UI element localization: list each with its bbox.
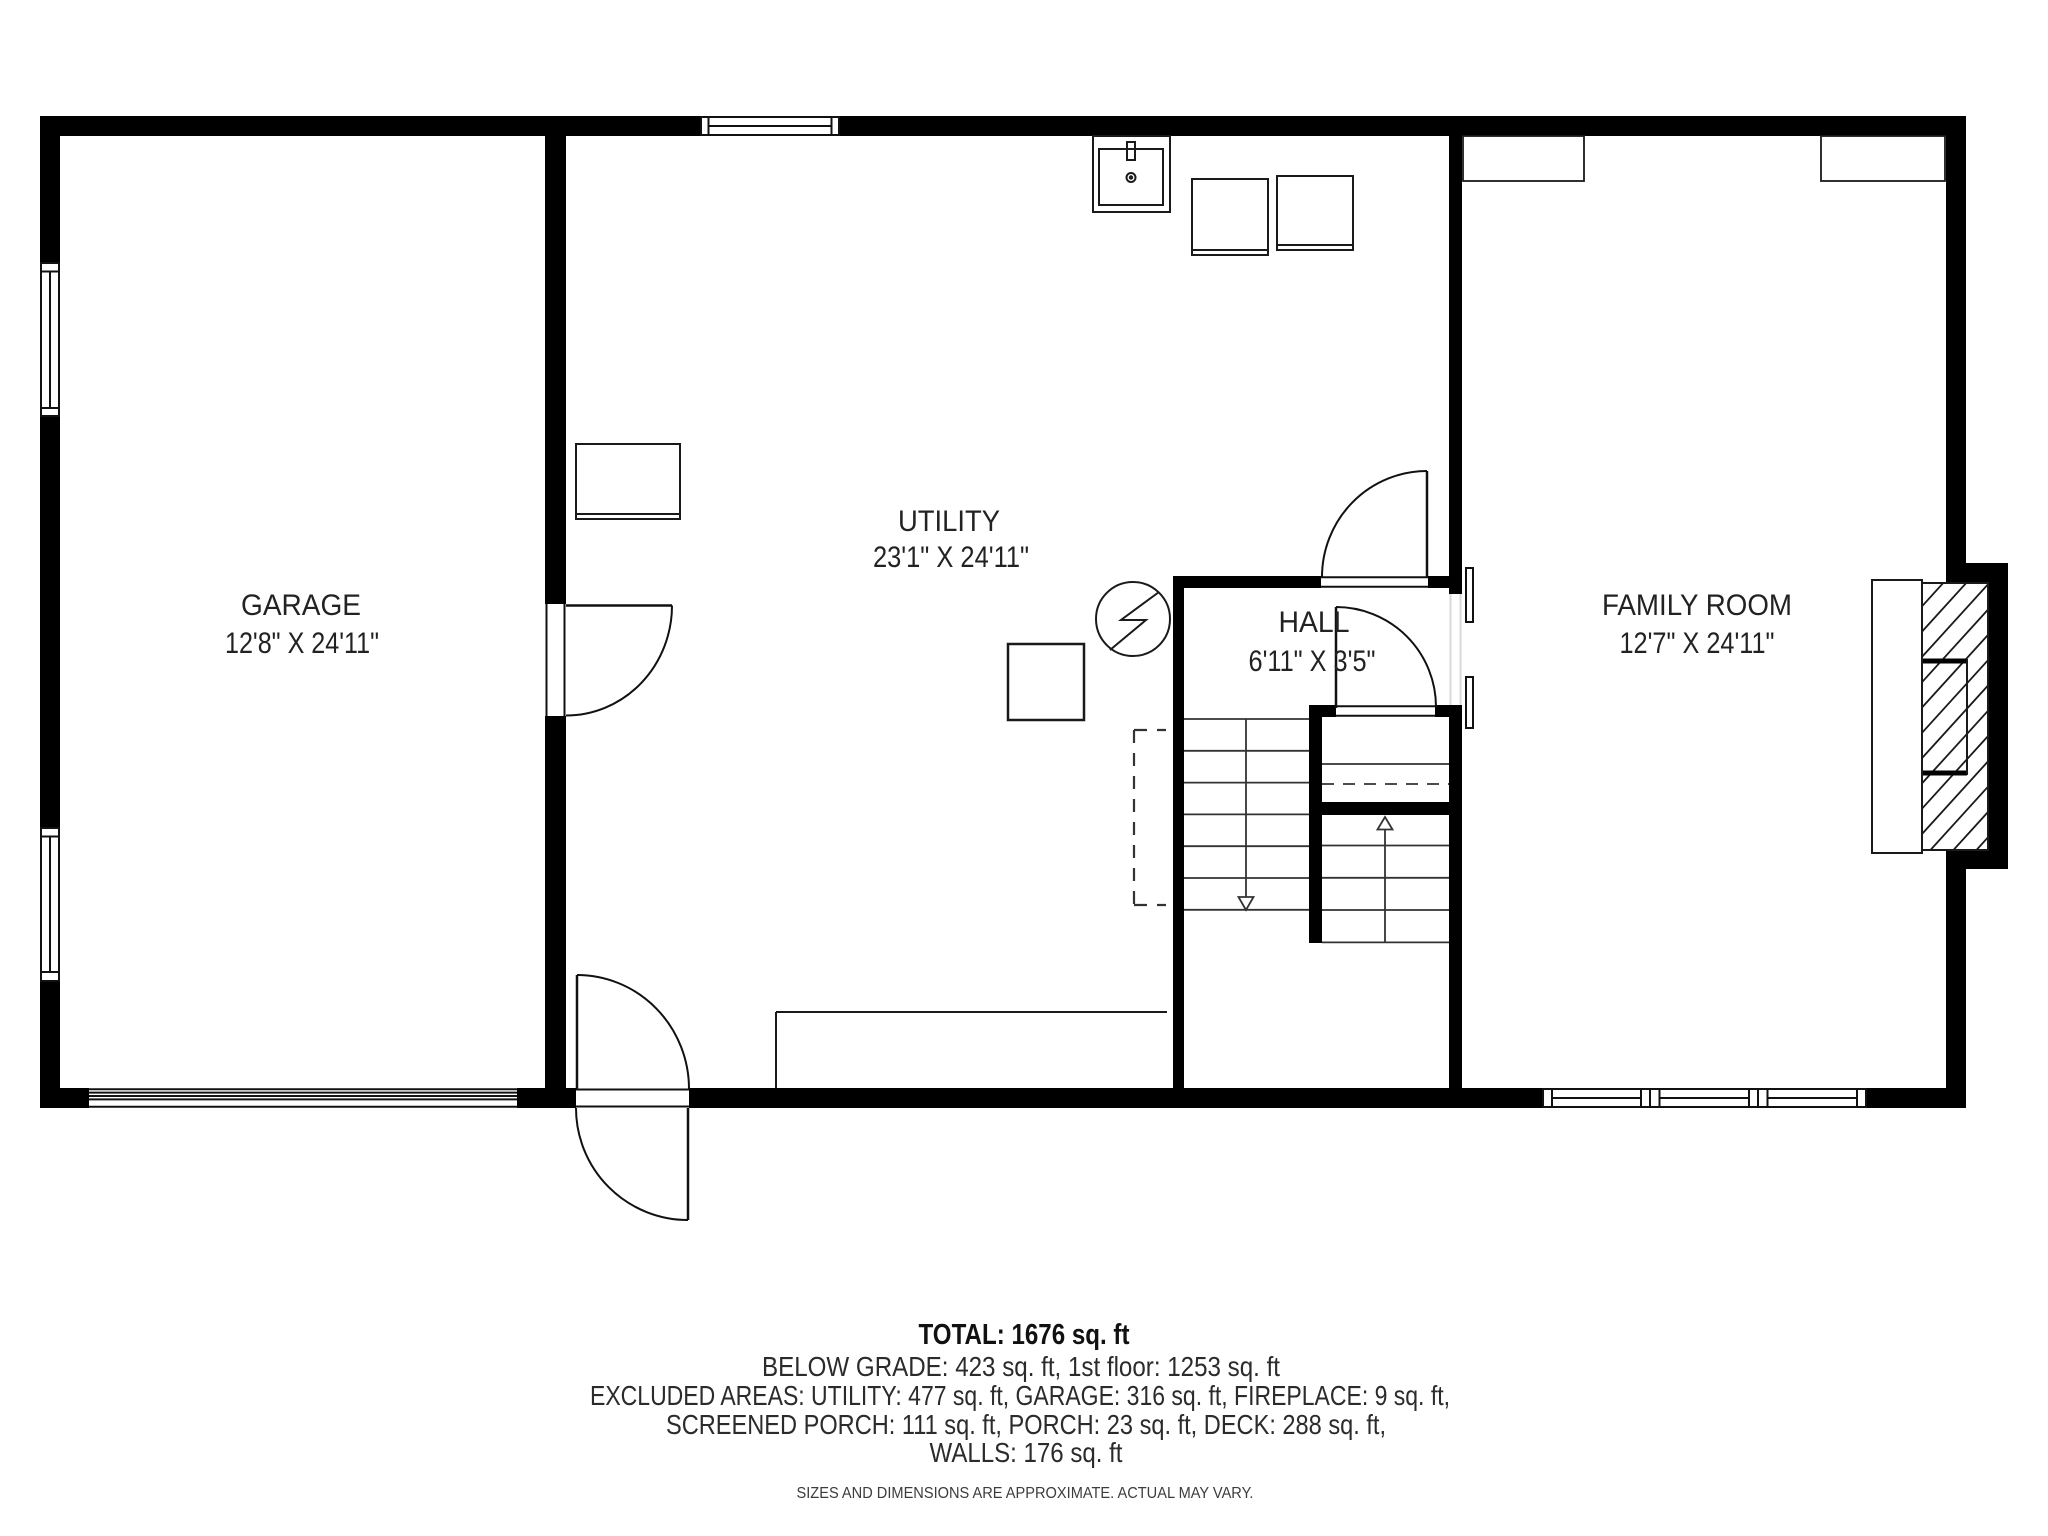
svg-text:UTILITY: UTILITY	[898, 505, 1000, 538]
svg-text:GARAGE: GARAGE	[241, 589, 361, 622]
svg-text:WALLS: 176 sq. ft: WALLS: 176 sq. ft	[930, 1437, 1123, 1468]
svg-text:EXCLUDED AREAS: UTILITY: 477 s: EXCLUDED AREAS: UTILITY: 477 sq. ft, GAR…	[590, 1380, 1450, 1411]
svg-text:12'8" X 24'11": 12'8" X 24'11"	[225, 627, 379, 660]
svg-text:6'11" X 3'5": 6'11" X 3'5"	[1249, 645, 1376, 678]
svg-text:BELOW GRADE: 423 sq. ft, 1st f: BELOW GRADE: 423 sq. ft, 1st floor: 1253…	[762, 1351, 1280, 1382]
svg-text:SIZES AND DIMENSIONS ARE APPRO: SIZES AND DIMENSIONS ARE APPROXIMATE. AC…	[797, 1485, 1254, 1502]
svg-text:12'7" X 24'11": 12'7" X 24'11"	[1620, 627, 1775, 660]
svg-text:TOTAL: 1676 sq. ft: TOTAL: 1676 sq. ft	[919, 1319, 1130, 1351]
svg-text:HALL: HALL	[1279, 606, 1350, 639]
svg-text:23'1" X 24'11": 23'1" X 24'11"	[873, 541, 1029, 574]
svg-text:FAMILY ROOM: FAMILY ROOM	[1602, 589, 1792, 622]
svg-text:SCREENED PORCH: 111 sq. ft, PO: SCREENED PORCH: 111 sq. ft, PORCH: 23 sq…	[666, 1409, 1386, 1440]
